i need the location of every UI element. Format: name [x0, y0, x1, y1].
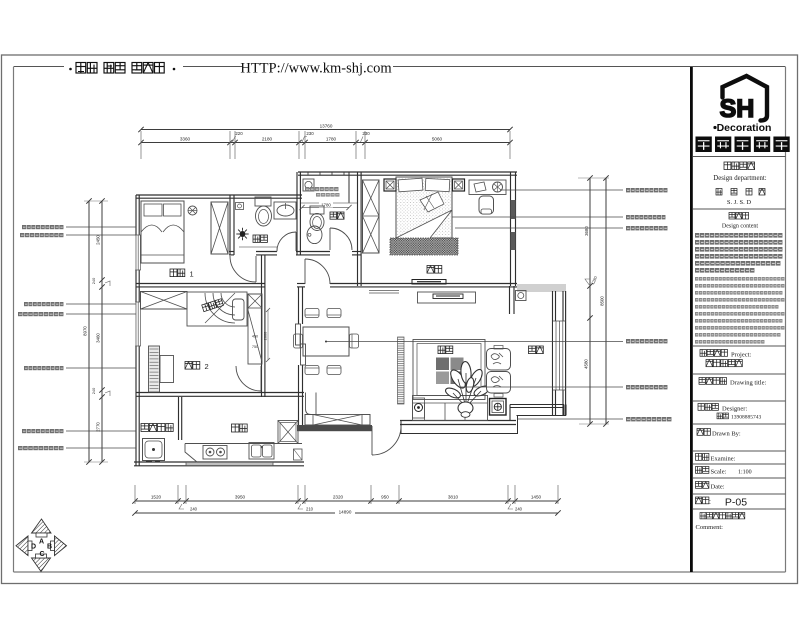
svg-text:B: B — [47, 544, 52, 551]
svg-text:Drawing title:: Drawing title: — [730, 380, 766, 387]
svg-text:950: 950 — [381, 495, 389, 500]
svg-text:1:100: 1:100 — [738, 470, 752, 476]
svg-text:D: D — [31, 544, 36, 551]
svg-text:3460: 3460 — [96, 333, 101, 343]
svg-text:2320: 2320 — [333, 495, 344, 500]
svg-text:3360: 3360 — [180, 137, 191, 142]
svg-text:2000: 2000 — [264, 332, 268, 340]
svg-text:450: 450 — [252, 335, 258, 339]
svg-text:HTTP://www.km-shj.com: HTTP://www.km-shj.com — [240, 61, 392, 77]
svg-text:C: C — [39, 551, 44, 558]
svg-text:3950: 3950 — [235, 495, 246, 500]
svg-text:1450: 1450 — [531, 495, 542, 500]
svg-text:Designer:: Designer: — [722, 406, 747, 413]
svg-text:8500: 8500 — [600, 296, 605, 306]
svg-text:2: 2 — [205, 362, 209, 371]
svg-text:1780: 1780 — [321, 203, 331, 208]
svg-text:SH: SH — [720, 95, 755, 123]
svg-text:14890: 14890 — [339, 510, 352, 515]
svg-text:240: 240 — [515, 507, 523, 512]
svg-text:4580: 4580 — [584, 359, 589, 369]
svg-text:Scale:: Scale: — [711, 469, 727, 476]
svg-text:240: 240 — [91, 387, 96, 394]
svg-text:Decoration: Decoration — [717, 122, 772, 134]
svg-text:210: 210 — [306, 507, 314, 512]
svg-text:Design content: Design content — [722, 224, 758, 230]
svg-text:5060: 5060 — [432, 137, 443, 142]
svg-text:230: 230 — [362, 131, 370, 136]
svg-text::: : — [709, 499, 711, 506]
svg-text:1780: 1780 — [326, 137, 337, 142]
svg-text:230: 230 — [306, 131, 314, 136]
svg-text:8970: 8970 — [83, 326, 88, 336]
svg-text:Design department:: Design department: — [713, 175, 767, 182]
svg-text:13908885743: 13908885743 — [731, 415, 762, 421]
svg-text:240: 240 — [91, 277, 96, 284]
svg-text:S. J. S. D: S. J. S. D — [727, 199, 752, 206]
svg-text:3680: 3680 — [584, 226, 589, 236]
svg-text:3810: 3810 — [448, 495, 459, 500]
svg-text:220: 220 — [235, 131, 243, 136]
svg-text:Project:: Project: — [731, 352, 751, 359]
svg-text:2450: 2450 — [96, 235, 101, 245]
svg-text:Drawn By:: Drawn By: — [712, 431, 741, 438]
svg-text:2180: 2180 — [262, 137, 273, 142]
svg-text:1: 1 — [190, 270, 194, 279]
svg-text:P-05: P-05 — [725, 497, 747, 509]
svg-text:2770: 2770 — [96, 422, 101, 432]
svg-text:240: 240 — [190, 507, 198, 512]
svg-text:750: 750 — [252, 345, 258, 349]
svg-text:Date:: Date: — [711, 484, 725, 491]
svg-text:Examine:: Examine: — [711, 456, 736, 463]
svg-text:Comment:: Comment: — [696, 524, 724, 531]
svg-text:1520: 1520 — [151, 495, 162, 500]
svg-text:13760: 13760 — [320, 124, 333, 129]
svg-text:A: A — [39, 539, 44, 546]
